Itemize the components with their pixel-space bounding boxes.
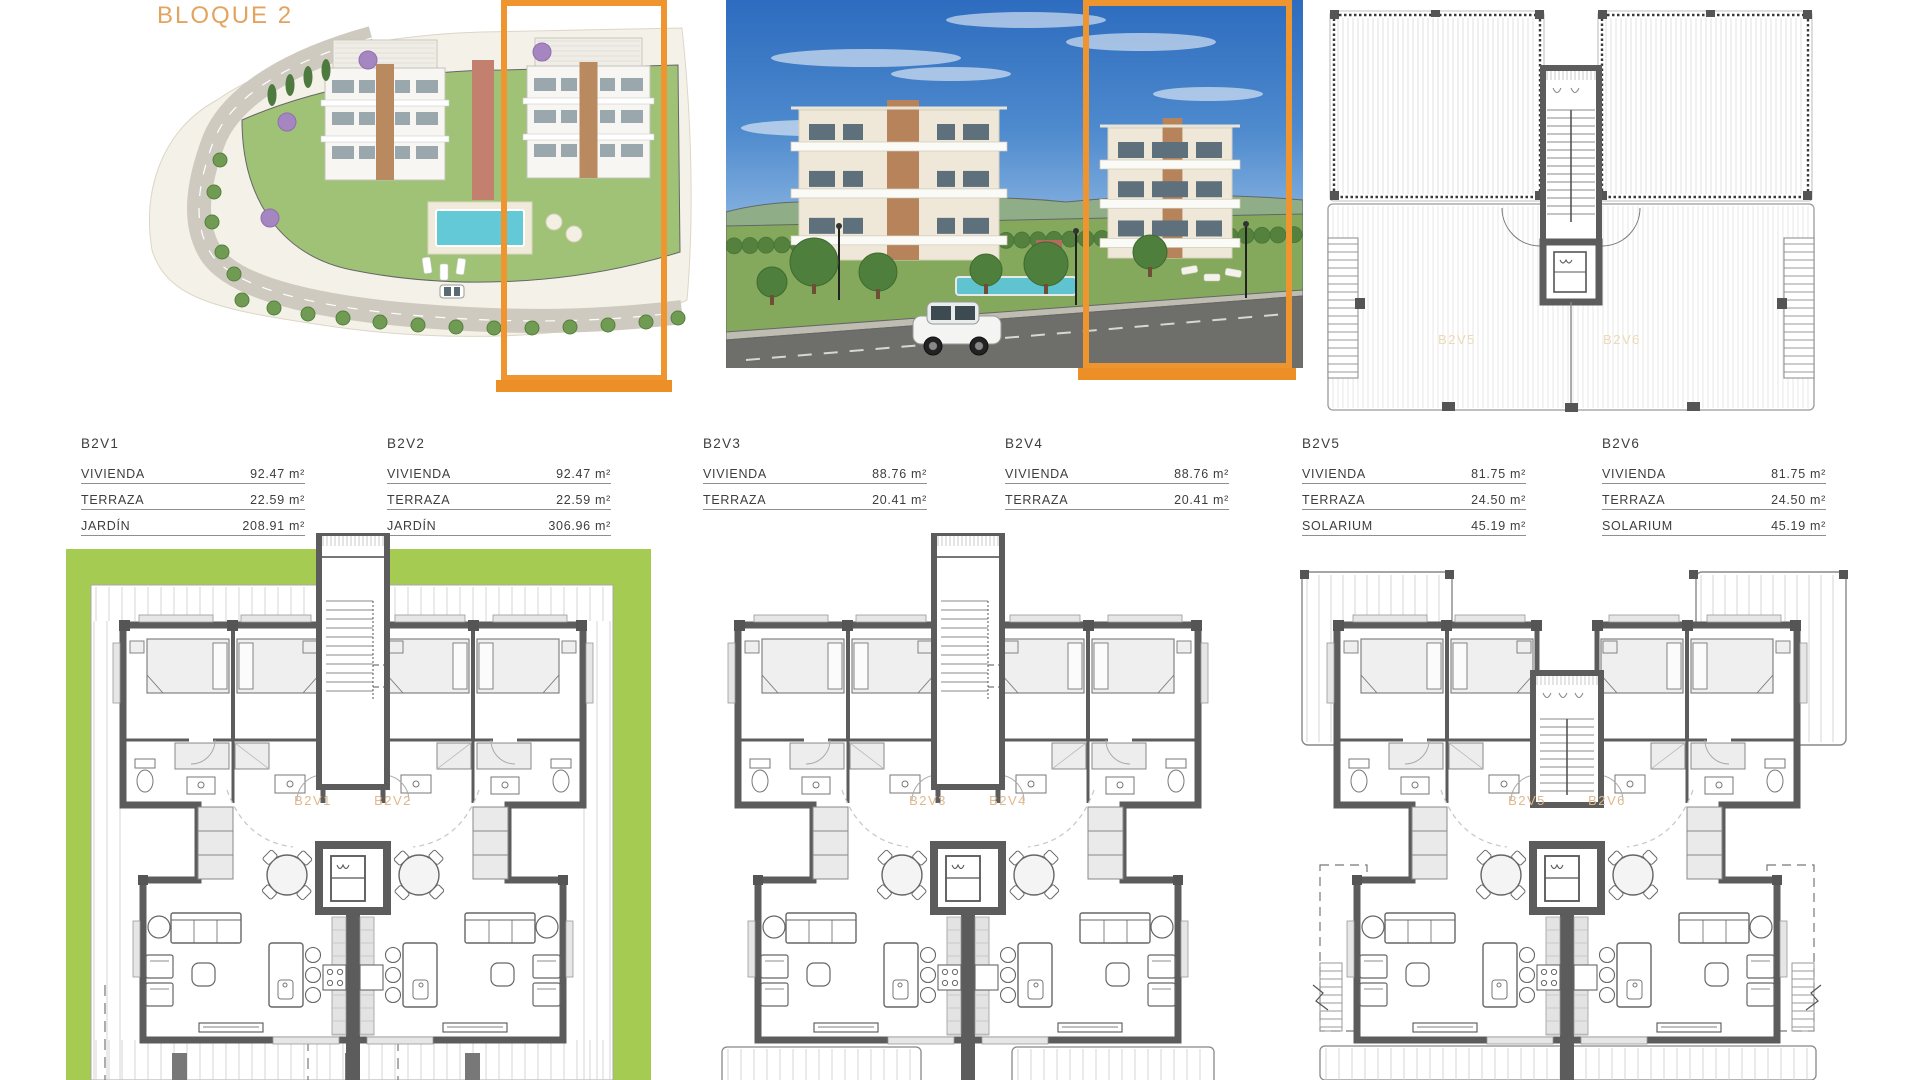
spec-value: 92.47 m² [250, 467, 305, 481]
unit-label: B2V5 [1508, 793, 1546, 808]
spec-row: VIVIENDA 92.47 m² [81, 458, 305, 484]
unit-spec-table: B2V1 VIVIENDA 92.47 m² TERRAZA 22.59 m² … [81, 436, 305, 536]
unit-title: B2V1 [81, 436, 305, 458]
floor-plan-garden-units: B2V1 B2V2 [60, 533, 660, 1080]
spec-row: VIVIENDA 92.47 m² [387, 458, 611, 484]
unit-spec-table: B2V6 VIVIENDA 81.75 m² TERRAZA 24.50 m² … [1602, 436, 1826, 536]
highlight-box-left [501, 0, 667, 381]
unit-label: B2V6 [1588, 793, 1626, 808]
unit-title: B2V5 [1302, 436, 1526, 458]
unit-title: B2V2 [387, 436, 611, 458]
spec-row: TERRAZA 24.50 m² [1602, 484, 1826, 510]
unit-label: B2V4 [989, 793, 1027, 808]
roof-unit-label-left: B2V5 [1438, 332, 1476, 347]
unit-label: B2V2 [374, 793, 412, 808]
floor-plan-terrace-units: B2V3 B2V4 [700, 533, 1220, 1080]
spec-value: 92.47 m² [556, 467, 611, 481]
spec-value: 208.91 m² [242, 519, 305, 533]
spec-value: 22.59 m² [250, 493, 305, 507]
unit-spec-table: B2V2 VIVIENDA 92.47 m² TERRAZA 22.59 m² … [387, 436, 611, 536]
unit-spec-table: B2V3 VIVIENDA 88.76 m² TERRAZA 20.41 m² [703, 436, 927, 510]
spec-label: SOLARIUM [1602, 519, 1673, 533]
spec-row: VIVIENDA 88.76 m² [1005, 458, 1229, 484]
spec-value: 88.76 m² [1174, 467, 1229, 481]
spec-value: 20.41 m² [872, 493, 927, 507]
spec-value: 81.75 m² [1771, 467, 1826, 481]
roof-unit-label-right: B2V6 [1603, 332, 1641, 347]
unit-spec-table: B2V5 VIVIENDA 81.75 m² TERRAZA 24.50 m² … [1302, 436, 1526, 536]
spec-label: TERRAZA [81, 493, 144, 507]
unit-spec-table: B2V4 VIVIENDA 88.76 m² TERRAZA 20.41 m² [1005, 436, 1229, 510]
spec-label: TERRAZA [1005, 493, 1068, 507]
spec-label: VIVIENDA [387, 467, 451, 481]
spec-label: JARDÍN [81, 519, 130, 533]
unit-label: B2V1 [294, 793, 332, 808]
spec-row: VIVIENDA 88.76 m² [703, 458, 927, 484]
spec-label: VIVIENDA [1602, 467, 1666, 481]
spec-row: TERRAZA 24.50 m² [1302, 484, 1526, 510]
spec-value: 81.75 m² [1471, 467, 1526, 481]
brochure-page: BLOQUE 2 B2V5 B2V6 B2V1 VIVIENDA 92.47 m… [0, 0, 1920, 1080]
spec-value: 20.41 m² [1174, 493, 1229, 507]
spec-row: TERRAZA 20.41 m² [1005, 484, 1229, 510]
spec-row: TERRAZA 22.59 m² [387, 484, 611, 510]
spec-value: 45.19 m² [1471, 519, 1526, 533]
unit-title: B2V6 [1602, 436, 1826, 458]
spec-row: VIVIENDA 81.75 m² [1602, 458, 1826, 484]
spec-value: 22.59 m² [556, 493, 611, 507]
spec-row: TERRAZA 22.59 m² [81, 484, 305, 510]
floor-plan-solarium-units: B2V5 B2V6 [1285, 533, 1885, 1080]
spec-label: TERRAZA [387, 493, 450, 507]
spec-label: TERRAZA [1602, 493, 1665, 507]
spec-label: TERRAZA [703, 493, 766, 507]
spec-label: TERRAZA [1302, 493, 1365, 507]
spec-value: 24.50 m² [1471, 493, 1526, 507]
solarium-roof-plan: B2V5 B2V6 [1326, 10, 1816, 414]
highlight-box-right-base [1078, 368, 1296, 380]
highlight-box-right [1083, 0, 1292, 369]
spec-value: 45.19 m² [1771, 519, 1826, 533]
spec-label: VIVIENDA [703, 467, 767, 481]
unit-title: B2V4 [1005, 436, 1229, 458]
spec-value: 88.76 m² [872, 467, 927, 481]
spec-label: SOLARIUM [1302, 519, 1373, 533]
spec-value: 24.50 m² [1771, 493, 1826, 507]
unit-title: B2V3 [703, 436, 927, 458]
spec-label: VIVIENDA [81, 467, 145, 481]
highlight-box-left-base [496, 380, 672, 392]
spec-label: VIVIENDA [1005, 467, 1069, 481]
unit-label: B2V3 [909, 793, 947, 808]
spec-row: TERRAZA 20.41 m² [703, 484, 927, 510]
spec-value: 306.96 m² [548, 519, 611, 533]
spec-row: VIVIENDA 81.75 m² [1302, 458, 1526, 484]
spec-label: VIVIENDA [1302, 467, 1366, 481]
spec-label: JARDÍN [387, 519, 436, 533]
